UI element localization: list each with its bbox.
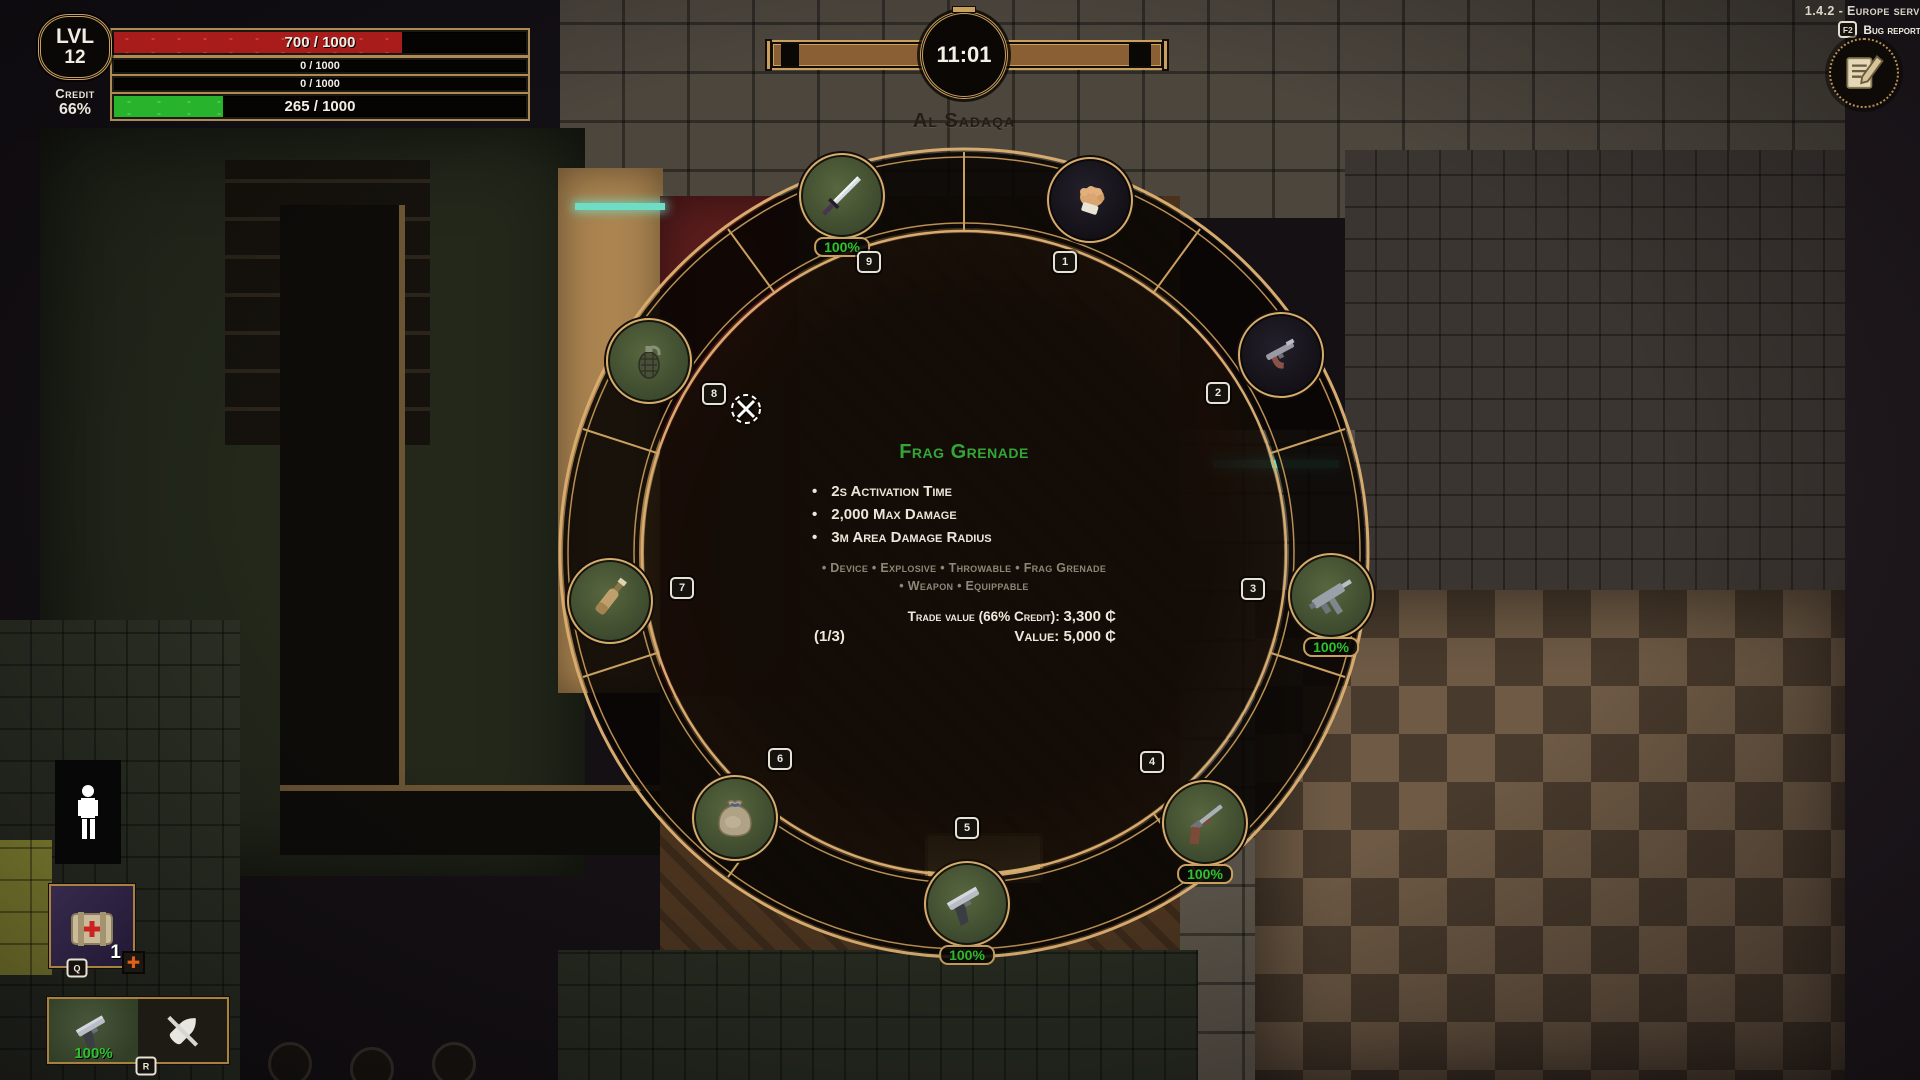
clock-time: 11:01 [936,42,991,68]
wheel-slot-8-grenade[interactable] [606,318,692,404]
medkit-count: 1 [110,942,121,964]
katana-icon [813,167,871,225]
time-bar-cap [1162,39,1169,71]
item-tags: • Device • Explosive • Throwable • Frag … [754,559,1174,595]
item-tags-line: • Device • Explosive • Throwable • Frag … [754,559,1174,577]
player-silhouette-icon [68,783,108,841]
time-bar-gap [1129,44,1151,66]
equipped-weapon-slot[interactable]: 100% [49,999,138,1062]
wheel-slot-5-pistol[interactable]: 100% [924,861,1010,947]
slot-key-7: 7 [670,577,694,599]
wheel-slot-4-shotgun[interactable]: 100% [1162,780,1248,866]
trade-value-label: Trade value (66% Credit): [908,609,1060,624]
grenade-icon [621,333,677,389]
level-badge: LVL 12 [38,14,112,80]
level-value: 12 [64,48,85,68]
bug-report-keycap: F2 [1838,21,1857,38]
slot-key-6: 6 [768,748,792,770]
item-stack-count: (1/3) [814,628,845,645]
level-label: LVL [56,26,94,48]
item-title: Frag Grenade [754,441,1174,464]
map-brick-wall-right [1345,150,1920,590]
version-info: 1.4.2 - Europe serve F2 Bug reporte [1805,4,1920,38]
slot-key-1: 1 [1053,251,1077,273]
value-amount: 5,000 ₵ [1063,628,1116,645]
item-trade-value: Trade value (66% Credit): 3,300 ₵ [754,608,1174,625]
clock-tick [952,6,976,13]
bottle-icon [582,573,638,629]
time-bar-cap [765,39,772,71]
bug-report-row: F2 Bug reporte [1805,21,1920,38]
item-value-row: (1/3) Value: 5,000 ₵ [754,628,1174,645]
map-dark-right-column [1845,0,1920,1080]
weapon-swap-key: R [136,1057,157,1076]
wheel-slot-3-smg[interactable]: 100% [1288,553,1374,639]
wheel-slot-7-bottle[interactable] [567,558,653,644]
medkit-quickslot[interactable]: 1 ✚ [49,884,135,968]
version-text: 1.4.2 - Europe serve [1805,4,1920,18]
player-status-panel [55,760,121,864]
item-stat: 2s Activation Time [812,480,1174,503]
wheel-slot-2-sawnoff[interactable] [1238,312,1324,398]
slot-key-8: 8 [702,383,726,405]
melee-noammo-slot[interactable] [138,999,227,1062]
armor-bar-text: 0 / 1000 [114,78,526,90]
crossed-bullet-icon [160,1008,206,1054]
shotgun-icon [1175,793,1235,853]
weapon-quickbar: 100% [47,997,229,1064]
value-label: Value: [1014,628,1059,645]
map-stool [350,1047,394,1080]
time-bar-gap [781,44,799,66]
pistol-icon [937,874,997,934]
slot-key-3: 3 [1241,578,1265,600]
credit-value: 66% [30,101,120,119]
shield-bar: 0 / 1000 [112,58,528,74]
item-stats: 2s Activation Time 2,000 Max Damage 3m A… [754,480,1174,549]
sack-icon [707,790,763,846]
health-bar: 700 / 1000 [112,30,528,55]
wheel-slot-6-sack[interactable] [692,775,778,861]
clock: 11:01 [920,11,1008,99]
item-tags-line: • Weapon • Equippable [754,577,1174,595]
wheel-slot-9-katana[interactable]: 100% [799,153,885,239]
condition-label: 100% [1177,864,1233,884]
stamina-bar: 265 / 1000 [112,94,528,119]
condition-label: 100% [939,945,995,965]
bug-report-button[interactable] [1829,38,1899,108]
credit-indicator: Credit 66% [30,86,120,119]
slot-key-2: 2 [1206,382,1230,404]
slot-key-5: 5 [955,817,979,839]
item-stat: 2,000 Max Damage [812,503,1174,526]
slot-key-4: 4 [1140,751,1164,773]
smg-icon [1301,566,1361,626]
notepad-pencil-icon [1840,49,1888,97]
sawnoff-pistol-icon [1253,327,1309,383]
fist-icon [1062,172,1118,228]
medkit-key: Q [67,959,88,978]
bug-report-label[interactable]: Bug reporte [1863,23,1920,37]
wheel-slot-1-fists[interactable] [1047,157,1133,243]
cursor-crosshair [727,390,765,428]
stamina-bar-text: 265 / 1000 [114,96,526,117]
weapon-condition: 100% [74,1045,112,1062]
condition-label: 100% [1303,637,1359,657]
map-bar-counter [280,205,405,785]
health-bar-text: 700 / 1000 [114,32,526,53]
game-screen: 100% 100% 100% 100% 1 2 3 4 5 6 7 8 9 Fr… [0,0,1920,1080]
item-info-panel: Frag Grenade 2s Activation Time 2,000 Ma… [754,441,1174,645]
heal-plus-icon: ✚ [122,951,145,974]
map-tiles-bottom [558,950,1198,1080]
map-stool [268,1042,312,1080]
shield-bar-text: 0 / 1000 [114,60,526,72]
credit-label: Credit [30,86,120,101]
armor-bar: 0 / 1000 [112,76,528,92]
map-stool [432,1042,476,1080]
map-yellow-patch [0,840,52,975]
item-stat: 3m Area Damage Radius [812,526,1174,549]
trade-value-amount: 3,300 ₵ [1063,608,1116,625]
item-value: Value: 5,000 ₵ [1014,628,1116,645]
slot-key-9: 9 [857,251,881,273]
